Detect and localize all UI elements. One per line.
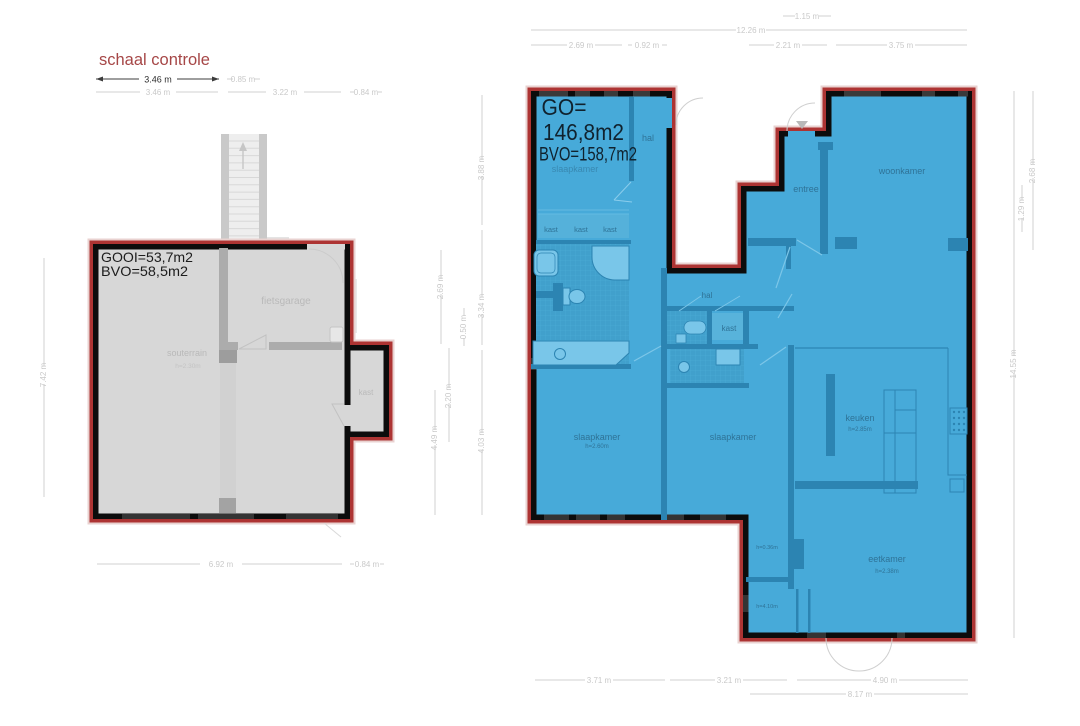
svg-text:slaapkamer: slaapkamer (574, 432, 621, 442)
svg-text:h=4.10m: h=4.10m (756, 604, 778, 610)
svg-text:1.15 m: 1.15 m (795, 12, 820, 21)
svg-text:kast: kast (359, 388, 374, 397)
svg-text:3.71 m: 3.71 m (587, 676, 612, 685)
svg-text:146,8m2: 146,8m2 (543, 119, 624, 145)
svg-text:3.34 m: 3.34 m (477, 293, 486, 318)
svg-text:4.49 m: 4.49 m (430, 425, 439, 450)
svg-text:GO=: GO= (542, 94, 587, 120)
svg-text:kast: kast (574, 225, 589, 234)
svg-text:2.69 m: 2.69 m (436, 274, 445, 299)
svg-text:8.17 m: 8.17 m (848, 690, 873, 699)
svg-text:3.75 m: 3.75 m (889, 41, 914, 50)
svg-text:kast: kast (603, 225, 618, 234)
svg-text:3.22 m: 3.22 m (273, 88, 298, 97)
svg-text:0.85 m: 0.85 m (231, 75, 256, 84)
svg-text:hal: hal (642, 133, 654, 143)
svg-text:0.92 m: 0.92 m (635, 41, 660, 50)
svg-text:12.26 m: 12.26 m (737, 26, 766, 35)
svg-text:h=2.38m: h=2.38m (875, 569, 899, 575)
svg-text:eetkamer: eetkamer (868, 554, 906, 564)
svg-text:4.90 m: 4.90 m (873, 676, 898, 685)
svg-text:schaal controle: schaal controle (99, 51, 210, 69)
svg-text:14.55 m: 14.55 m (1009, 349, 1018, 378)
svg-text:2.68 m: 2.68 m (1028, 158, 1037, 183)
svg-text:keuken: keuken (845, 413, 874, 423)
svg-text:slaapkamer: slaapkamer (710, 432, 757, 442)
svg-text:6.92 m: 6.92 m (209, 560, 234, 569)
svg-text:3.46 m: 3.46 m (144, 75, 172, 85)
svg-text:fietsgarage: fietsgarage (261, 296, 311, 307)
svg-text:3.21 m: 3.21 m (717, 676, 742, 685)
svg-text:souterrain: souterrain (167, 348, 207, 358)
svg-text:2.20 m: 2.20 m (444, 383, 453, 408)
svg-text:BVO=158,7m2: BVO=158,7m2 (539, 145, 637, 166)
svg-text:h=2.60m: h=2.60m (585, 444, 609, 450)
svg-text:7.42 m: 7.42 m (39, 362, 48, 387)
svg-text:2.69 m: 2.69 m (569, 41, 594, 50)
svg-text:BVO=58,5m2: BVO=58,5m2 (101, 263, 188, 279)
svg-text:entree: entree (793, 184, 819, 194)
svg-text:2.21 m: 2.21 m (776, 41, 801, 50)
svg-text:h=2.30m: h=2.30m (175, 363, 200, 370)
svg-text:0.50 m: 0.50 m (459, 314, 468, 339)
svg-text:slaapkamer: slaapkamer (552, 164, 599, 174)
svg-text:h=0.36m: h=0.36m (756, 545, 778, 551)
svg-text:0.84 m: 0.84 m (354, 88, 379, 97)
svg-text:hal: hal (702, 291, 713, 300)
svg-text:kast: kast (722, 324, 737, 333)
svg-text:3.46 m: 3.46 m (146, 88, 171, 97)
svg-text:0.84 m: 0.84 m (355, 560, 380, 569)
svg-text:1.29 m: 1.29 m (1017, 196, 1026, 221)
svg-text:4.03 m: 4.03 m (477, 428, 486, 453)
svg-text:woonkamer: woonkamer (878, 166, 926, 176)
svg-text:h=2.85m: h=2.85m (848, 427, 872, 433)
svg-text:3.88 m: 3.88 m (477, 155, 486, 180)
svg-text:kast: kast (544, 225, 559, 234)
